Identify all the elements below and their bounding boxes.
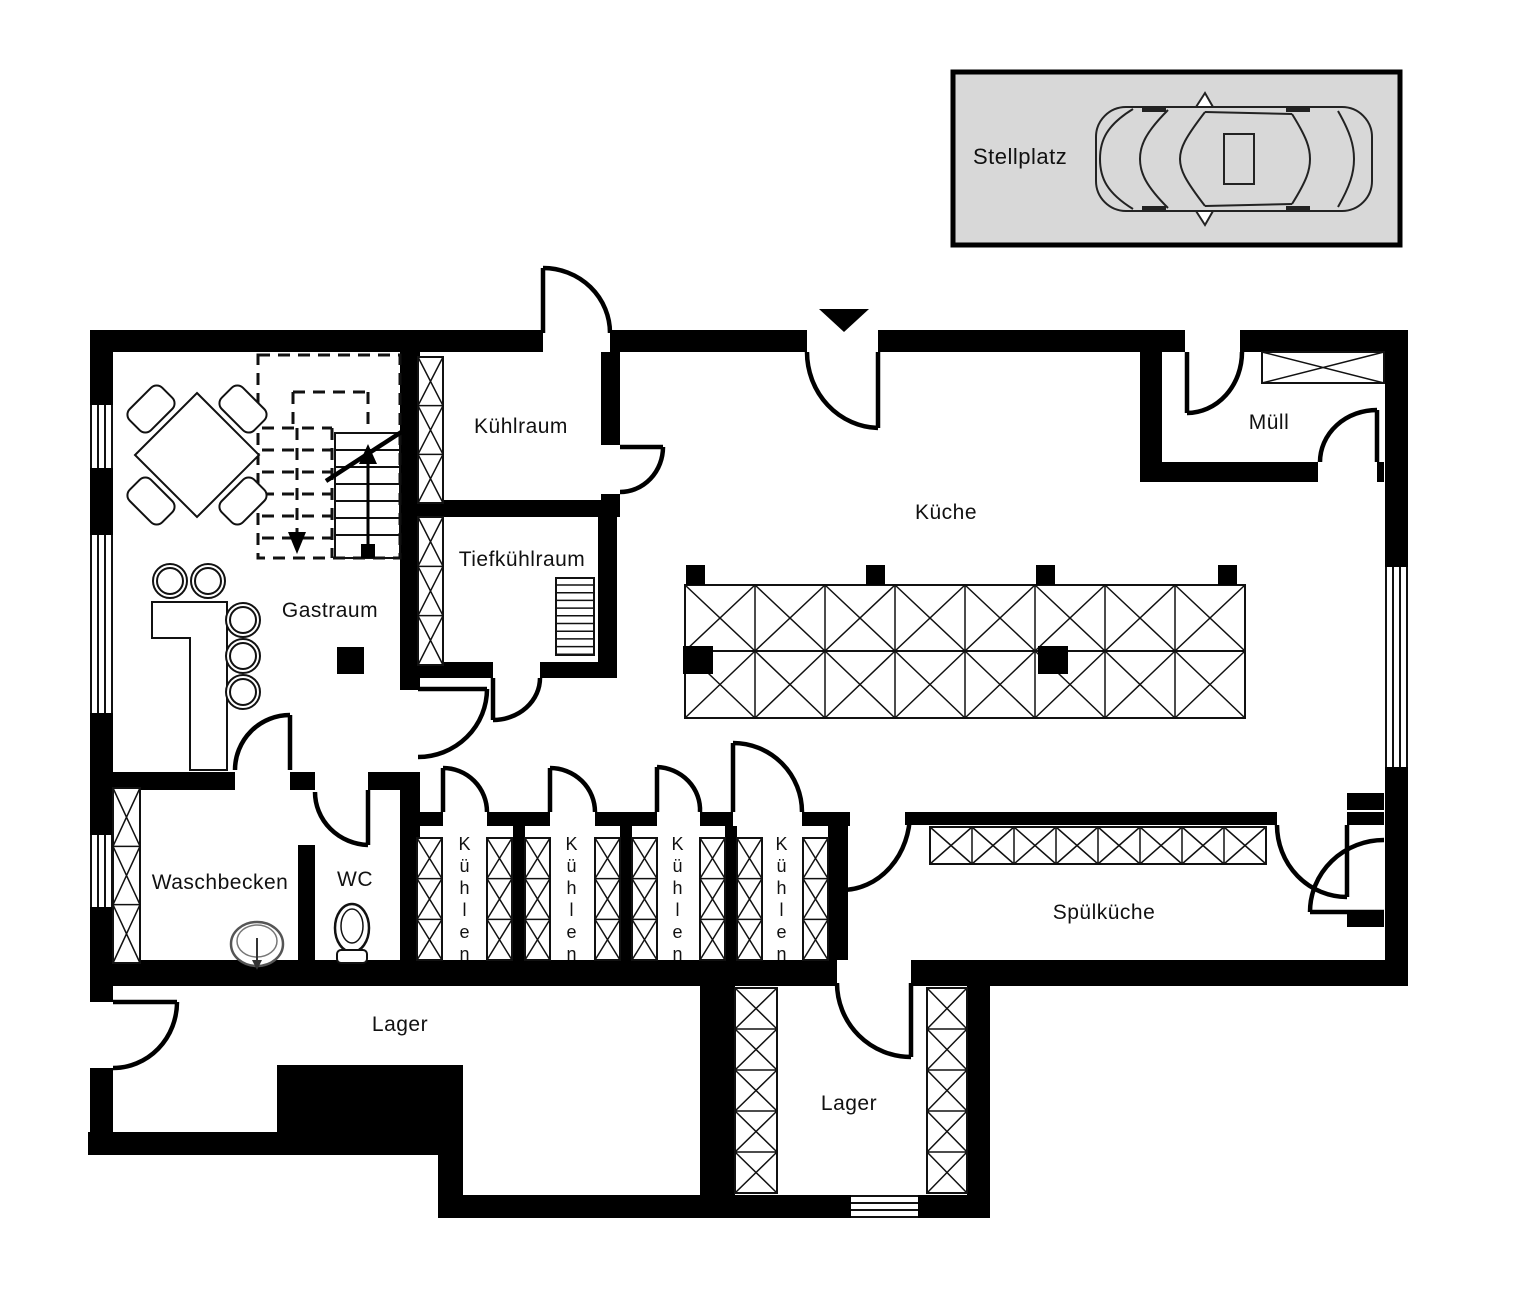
door-opening [550,812,595,826]
wall [1347,793,1384,810]
bar-stool [153,564,187,598]
door-opening [807,330,878,352]
door-swing-icon [807,352,878,428]
stairs-upper-steps [262,428,332,538]
window-icon [90,535,113,713]
door-opening [493,662,540,678]
wall [88,1132,463,1155]
door-swing-icon [657,767,700,812]
stairs-down-arrow [288,532,306,554]
stairs-inner-rail [293,392,368,428]
door-opening [1185,330,1240,352]
toilet-base [337,950,367,963]
muell-shelf [1262,352,1384,383]
insulated-wall-panel [417,838,442,960]
insulated-wall-panel [418,517,443,665]
parking-area [953,72,1400,245]
door-opening [601,445,620,494]
insulated-wall-panel [525,838,550,960]
floorplan: Stellplatz Kühlraum Tiefkühlraum Gastrau… [0,0,1514,1301]
door-opening [1318,462,1377,482]
door-swing-icon [1187,352,1242,413]
door-opening [235,772,290,790]
window-glass [90,535,113,713]
tiefkuehl-shelf [556,578,594,655]
door-swing-icon [443,768,487,812]
window-icon [90,405,113,468]
insulated-wall-panel [927,988,967,1193]
door-opening [315,772,368,790]
insulated-wall-panel [595,838,620,960]
stairs-start-post [361,544,375,558]
door-swing-icon [418,689,487,757]
column-pillar [337,647,364,674]
window-glass [851,1195,918,1218]
wall [598,500,617,678]
door-swing-icon [842,813,910,890]
door-swing-icon [315,790,368,845]
window-icon [1385,567,1408,767]
door-swing-icon [493,678,540,720]
wall [620,825,632,962]
door-swing-icon [733,743,802,812]
window-glass [90,405,113,468]
door-opening [90,1002,113,1068]
kitchen-island-row [685,651,1245,718]
bar-stool [226,603,260,637]
wall [828,812,848,962]
bar-stool [226,675,260,709]
island-post [683,646,713,674]
spuelkueche-counter [930,827,1266,864]
toilet-icon [335,904,369,963]
gastraum-furniture [124,382,364,770]
door-opening [733,812,802,826]
door-swing-icon [235,715,290,770]
kitchen-island-row [685,585,1245,651]
insulated-wall-panel [803,838,828,960]
door-swing-icon [1277,825,1347,897]
door-opening [837,960,911,986]
insulated-wall-panel [113,788,140,963]
bar-counter [152,602,227,770]
wall [400,812,418,962]
window-glass [90,835,113,907]
island-post [1038,646,1068,674]
wall [90,960,1408,986]
door-swing-icon [620,447,663,492]
bar-stool [226,639,260,673]
wall [298,845,315,962]
entrance-arrow-icon [819,309,869,332]
insulated-wall-panel [735,988,777,1193]
staircase [258,355,406,558]
island-post [866,565,885,585]
wall [513,825,525,962]
stairs-cut-line [326,429,406,481]
parking-box [953,72,1400,245]
wall [967,986,990,1195]
stairs-dashed-outline [258,355,400,558]
island-post [686,565,705,585]
door-opening [657,812,700,826]
door-opening [443,812,487,826]
door-swing-icon [837,983,911,1057]
door-opening [543,330,610,352]
bar-stool [191,564,225,598]
door-swing-icon [1320,410,1377,462]
insulated-wall-panel [487,838,512,960]
wall [1347,812,1384,825]
floorplan-canvas [0,0,1514,1301]
door-swing-icon [113,1002,177,1068]
insulated-wall-panel [418,357,443,503]
window-icon [90,835,113,907]
insulated-wall-panel [632,838,657,960]
island-post [1218,565,1237,585]
island-post [1036,565,1055,585]
door-swing-icon [543,268,610,333]
insulated-wall-panel [700,838,725,960]
wall [725,825,737,962]
insulated-wall-panel [737,838,762,960]
door-swing-icon [550,768,595,812]
window-icon [851,1195,918,1218]
window-glass [1385,567,1408,767]
wall [905,812,1277,825]
toilet-bowl [335,904,369,952]
wall [700,986,735,1195]
